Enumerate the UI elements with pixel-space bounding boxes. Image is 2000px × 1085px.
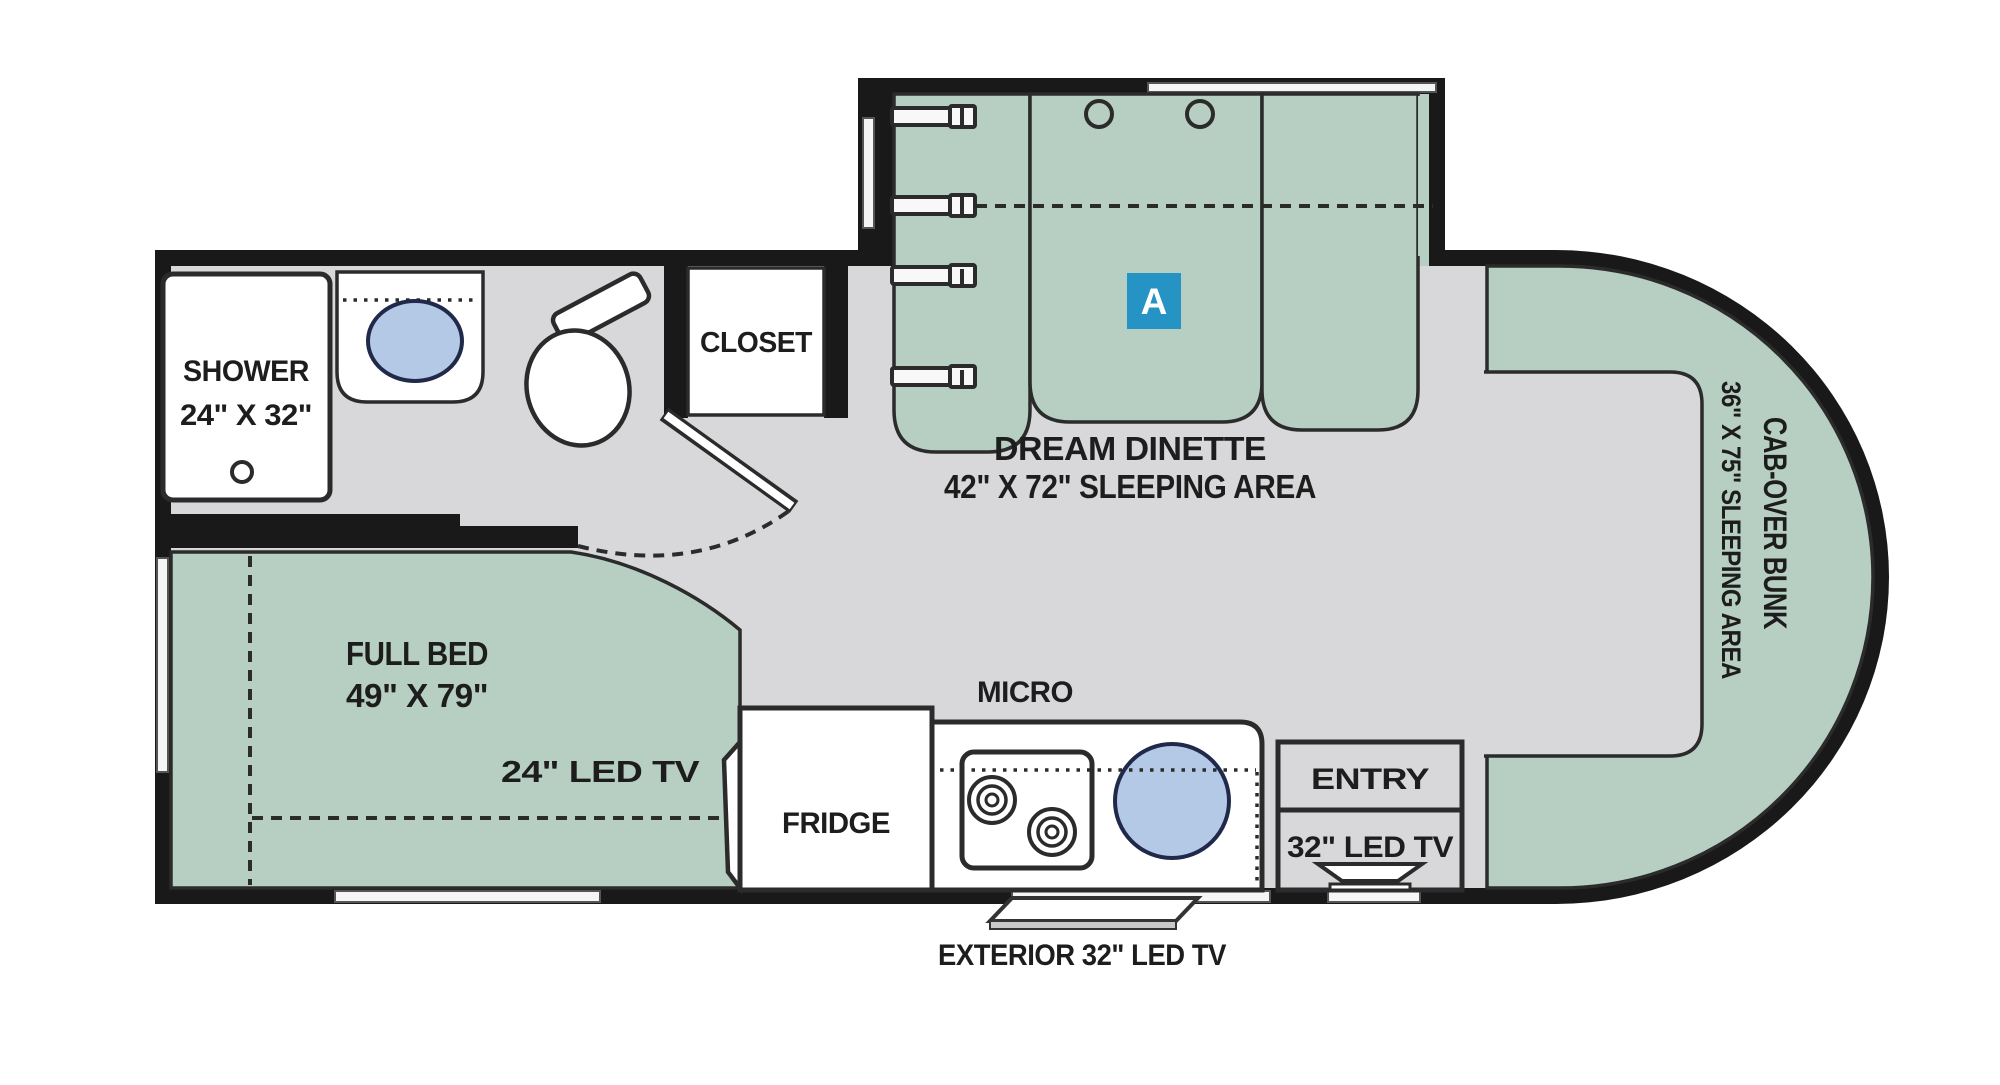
cab-floor-cutout	[1484, 372, 1702, 756]
bathroom-wall	[157, 514, 460, 548]
exterior-tv-base	[990, 921, 1176, 929]
bath-sink	[368, 301, 462, 381]
entry-tv-base	[1330, 884, 1410, 890]
dinette-bench-middle	[1030, 94, 1262, 422]
slideout-left-window	[863, 118, 874, 228]
bed-tv-label: 24" LED TV	[501, 754, 700, 789]
full-bed-size-label: 49" X 79"	[346, 677, 488, 714]
bunk-size-label: 36" X 75" SLEEPING AREA	[1716, 381, 1746, 679]
dinette-right-strip	[1418, 96, 1429, 256]
full-bed-area	[171, 552, 740, 888]
closet-right-wall	[824, 266, 848, 418]
slideout-top-window	[1148, 83, 1436, 92]
badge-a-label: A	[1141, 281, 1168, 322]
fridge-label: FRIDGE	[782, 807, 890, 840]
dinette-bench-right	[1262, 94, 1418, 430]
left-wall-window	[157, 558, 168, 772]
entry-label: ENTRY	[1311, 763, 1430, 796]
exterior-tv-icon	[990, 898, 1198, 921]
bottom-wall-window-entry	[1328, 891, 1420, 902]
closet-label: CLOSET	[700, 327, 813, 359]
kitchen-sink	[1115, 744, 1229, 858]
dinette-label: DREAM DINETTE	[994, 430, 1266, 467]
shower-size-label: 24" X 32"	[180, 399, 312, 432]
dinette-size-label: 42" X 72" SLEEPING AREA	[944, 468, 1316, 505]
closet-left-wall	[664, 266, 688, 418]
exterior-tv-label: EXTERIOR 32" LED TV	[938, 939, 1226, 972]
shower-label: SHOWER	[183, 355, 310, 388]
entry-tv-label: 32" LED TV	[1287, 831, 1454, 864]
fridge	[740, 708, 932, 890]
full-bed-label: FULL BED	[346, 635, 488, 672]
bathroom-wall-step	[460, 526, 578, 548]
micro-label: MICRO	[977, 676, 1073, 709]
rv-floorplan: A SHOWER 24" X 32" CLOSET FULL BED 49" X…	[0, 0, 2000, 1085]
floorplan-canvas: A SHOWER 24" X 32" CLOSET FULL BED 49" X…	[0, 0, 2000, 1085]
bottom-wall-window-bed	[335, 891, 600, 902]
shower-drain	[232, 462, 252, 482]
bunk-label: CAB-OVER BUNK	[1757, 417, 1793, 629]
